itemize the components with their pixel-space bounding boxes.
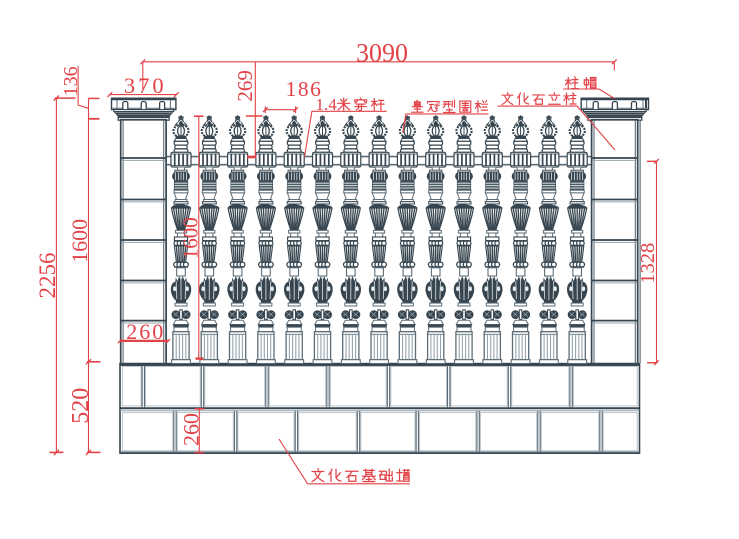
svg-text:370: 370 xyxy=(124,73,167,98)
svg-text:1328: 1328 xyxy=(637,243,659,284)
svg-text:1600: 1600 xyxy=(67,219,92,263)
svg-text:260: 260 xyxy=(126,319,165,344)
svg-text:3090: 3090 xyxy=(356,39,408,68)
svg-text:2256: 2256 xyxy=(35,253,60,299)
svg-text:520: 520 xyxy=(68,388,94,424)
svg-text:269: 269 xyxy=(233,70,257,102)
svg-text:1600: 1600 xyxy=(179,217,203,259)
svg-text:260: 260 xyxy=(179,413,204,446)
svg-text:136: 136 xyxy=(60,66,82,96)
